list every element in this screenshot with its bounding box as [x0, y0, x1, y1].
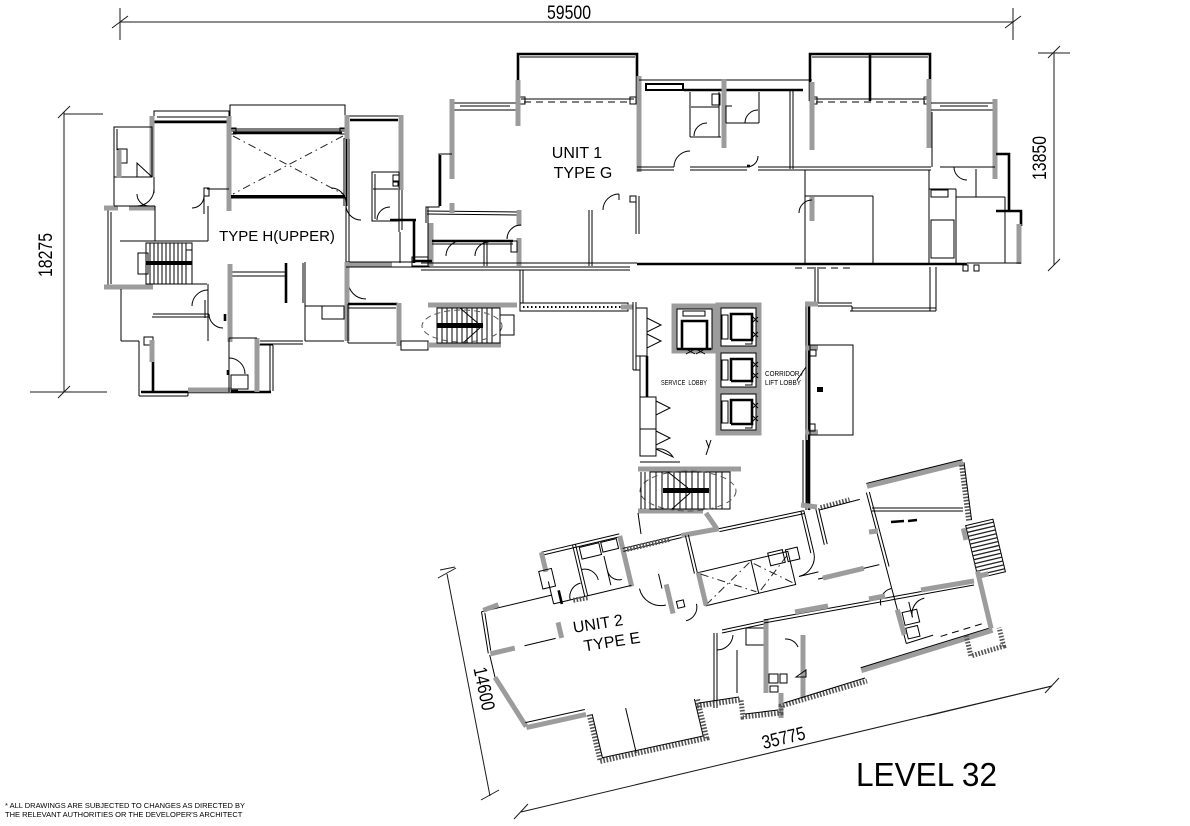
svg-text:* ALL DRAWINGS ARE SUBJECTED T: * ALL DRAWINGS ARE SUBJECTED TO CHANGES … — [5, 801, 245, 810]
svg-text:UNIT 1: UNIT 1 — [552, 145, 602, 162]
svg-text:LEVEL 32: LEVEL 32 — [856, 756, 997, 793]
svg-text:59500: 59500 — [547, 3, 591, 24]
svg-text:TYPE H(UPPER): TYPE H(UPPER) — [219, 228, 335, 245]
svg-text:SERVICE LOBBY: SERVICE LOBBY — [661, 380, 707, 387]
svg-text:TYPE G: TYPE G — [554, 165, 613, 182]
svg-text:LIFT LOBBY: LIFT LOBBY — [765, 380, 801, 387]
svg-text:13850: 13850 — [1030, 136, 1051, 180]
svg-text:18275: 18275 — [36, 233, 57, 277]
svg-text:THE RELEVANT AUTHORITIES OR TH: THE RELEVANT AUTHORITIES OR THE DEVELOPE… — [5, 810, 243, 819]
svg-text:CORRIDOR /: CORRIDOR / — [765, 371, 803, 378]
